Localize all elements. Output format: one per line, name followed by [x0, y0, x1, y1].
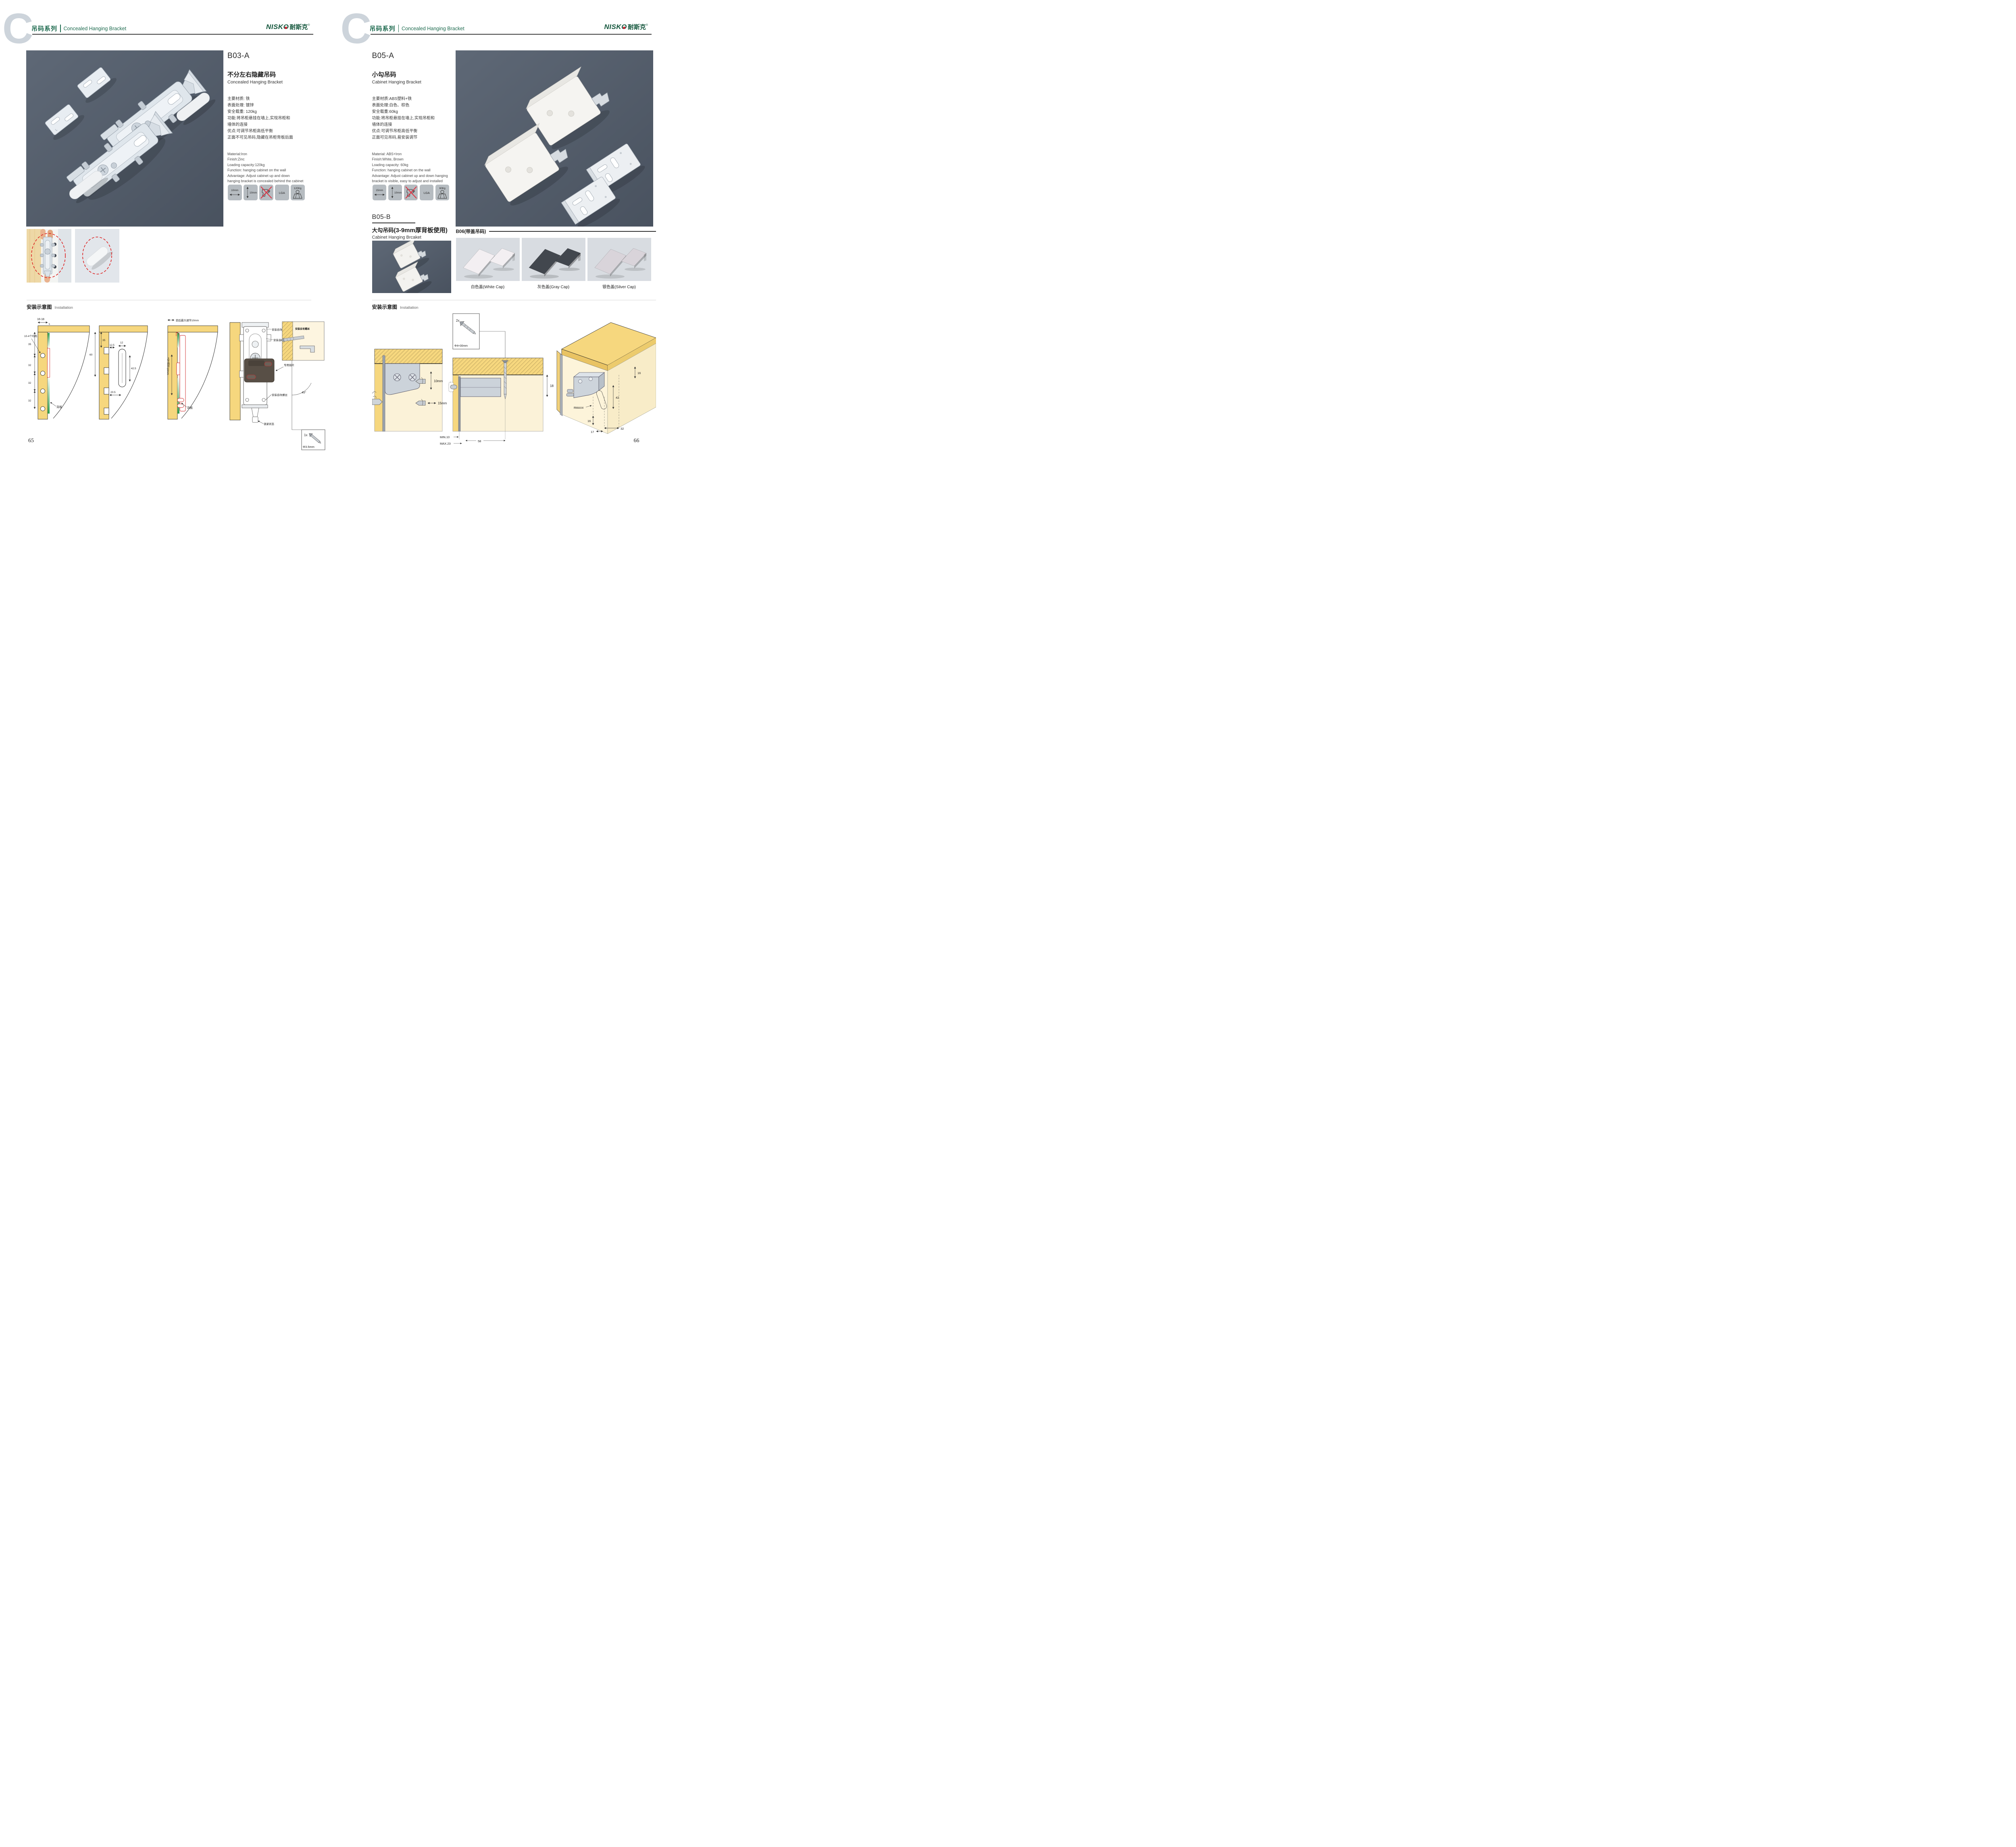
- dim-label: 15mm: [438, 401, 447, 405]
- detail-photo-install-hands: [27, 229, 71, 283]
- icon-label: 60Kg: [439, 187, 446, 190]
- cap-label-gray: 灰色盖(Gray Cap): [522, 283, 585, 289]
- detail-photo-hands-image: [27, 229, 71, 283]
- diagram-bracket-adjustment: 前后最大调节10mm 上下调节10mm 背板: [167, 318, 218, 419]
- spec-line: 主要材质:ABS塑料+铁: [372, 96, 469, 102]
- product-name-b05b: 大勾吊码(3-9mm厚背板使用) Cabinet Hanging Brcaket: [372, 226, 448, 240]
- detail-photo-cap-image: [75, 229, 119, 283]
- spec-line: 安全载重: 120kg: [227, 109, 324, 115]
- spec-line: Finish:White, Brown: [372, 157, 469, 162]
- feature-icons: 15mm 10mm LGA: [373, 185, 450, 200]
- dim-label: 32: [28, 382, 31, 385]
- spec-line: 功能:将吊柜悬挂在墙上,实现吊柜和: [227, 115, 324, 122]
- brand-logo: NISKO 耐斯克 ®: [266, 23, 310, 31]
- header-divider: [60, 25, 61, 32]
- screw-qty: 1x: [304, 433, 307, 437]
- brand-logo: NISKO 耐斯克 ®: [604, 23, 648, 31]
- product-name-cn: 不分左右隐藏吊码: [227, 70, 324, 79]
- dim-label: 20.5: [110, 391, 116, 394]
- icon-label: 10mm: [394, 191, 402, 194]
- dim-label: 32: [621, 427, 624, 431]
- no-drill-icon: [404, 185, 418, 200]
- registered-mark: ®: [308, 24, 310, 27]
- icon-label: LGA: [423, 191, 429, 195]
- spec-line: 表面处理:白色、棕色: [372, 102, 469, 109]
- spec-line: Material:Iron: [227, 152, 324, 157]
- header-divider: [398, 25, 399, 32]
- install-diagrams-b05: 10mm 15mm 2x: [372, 310, 656, 452]
- spec-line: Function: hanging cabinet on the wall: [227, 168, 324, 173]
- specs-en: Material: ABS+Iron Finish:White, Brown L…: [372, 152, 469, 184]
- no-drill-icon: [259, 185, 273, 200]
- product-name-en: Concealed Hanging Bracket: [227, 80, 324, 85]
- page-left: C 吊码系列 Concealed Hanging Bracket NISKO 耐…: [0, 0, 338, 462]
- b06-header: B06(带盖吊码): [456, 228, 656, 235]
- spec-line: 正面不可见吊码,隐藏在吊柜背板后面: [227, 135, 324, 141]
- dim-label: 60: [90, 354, 93, 356]
- page-header: 吊码系列 Concealed Hanging Bracket: [370, 24, 464, 33]
- catalog-spread: C 吊码系列 Concealed Hanging Bracket NISKO 耐…: [0, 0, 676, 462]
- diagram-side-drilling: 16-18 5 35 32 32 32: [24, 318, 90, 419]
- diagram-slot-dimensions: 60 35 12.5 12 42.5 20.5: [90, 326, 148, 419]
- series-title-en: Concealed Hanging Bracket: [64, 26, 127, 31]
- cap-swatch-silver: [587, 238, 651, 281]
- b06-cap-swatches: [456, 238, 651, 281]
- diagram-top-screw-section: 18 MIN.10 MAX.23 58: [440, 358, 554, 445]
- spec-line: 墙体的连接: [372, 122, 469, 128]
- section-letter: C: [341, 7, 372, 50]
- install-title: 安装示意图 Installation: [27, 303, 73, 310]
- series-title-en: Concealed Hanging Bracket: [402, 26, 464, 31]
- brand-logo-cn: 耐斯克: [289, 23, 308, 31]
- spec-line: Advantage: Adjust cabinet up and down ha…: [372, 173, 469, 179]
- inset-screw-label: 安装自攻螺丝: [295, 327, 310, 331]
- lga-cert-icon: LGA: [420, 185, 434, 200]
- dim-label: 10mm: [434, 379, 443, 383]
- spec-line: Loading capacity: 60kg: [372, 162, 469, 168]
- dim-label: 42: [616, 396, 619, 399]
- dim-label: 35: [28, 343, 31, 346]
- dim-label: 17: [591, 430, 594, 434]
- dim-label: 32: [28, 399, 31, 402]
- feature-icons: 10mm 10mm LGA: [228, 185, 305, 200]
- install-separator: [372, 300, 656, 300]
- width-adjust-icon: 10mm: [228, 185, 242, 200]
- spec-line: 主要材质: 铁: [227, 96, 324, 102]
- callout-locked-state: 锁紧状态: [264, 422, 275, 426]
- install-separator: [27, 300, 311, 300]
- spec-line: Material: ABS+Iron: [372, 152, 469, 157]
- dim-label: 58: [478, 439, 481, 443]
- brand-logo-cn: 耐斯克: [628, 23, 646, 31]
- dim-label: RMAX4: [574, 407, 583, 410]
- callout-screw: 安装自攻螺丝: [272, 393, 288, 397]
- product-photo-b05a: [456, 50, 653, 227]
- spec-line: 优点:可调节吊柜高低平衡: [372, 128, 469, 135]
- diagram-screwbox: 2x Φ4×30mm: [453, 314, 505, 359]
- logo-dot-icon: [285, 27, 287, 29]
- b06-title: B06(带盖吊码): [456, 228, 486, 235]
- dim-label: 12: [120, 341, 123, 344]
- detail-photo-cover-cap: [75, 229, 119, 283]
- icon-label: 10mm: [231, 189, 238, 192]
- page-number: 66: [634, 438, 639, 444]
- callout-holes: 10-4个均布: [24, 334, 37, 338]
- dim-label: MAX.23: [440, 442, 451, 445]
- dim-label: 5: [49, 323, 50, 326]
- product-photo-b05b-image: [372, 241, 451, 293]
- product-photo-b03a-image: L: [26, 50, 223, 227]
- install-title-cn: 安装示意图: [27, 303, 52, 310]
- icon-label: 120Kg: [294, 187, 302, 190]
- cap-label-white: 白色盖(White Cap): [456, 283, 520, 289]
- cap-label-silver: 银色盖(Silver Cap): [587, 283, 651, 289]
- dim-label: 16: [637, 371, 641, 375]
- load-capacity-icon: 120Kg: [291, 185, 305, 200]
- specs-en: Material:Iron Finish:Zinc Loading capaci…: [227, 152, 324, 184]
- diagram-perspective-view: 16 42 RMAX4 16 17 32: [557, 322, 656, 434]
- product-name-cn: 小勾吊码: [372, 70, 469, 79]
- height-adjust-icon: 10mm: [244, 185, 258, 200]
- b05b-underline: [372, 223, 415, 223]
- dim-label: 35: [102, 339, 106, 342]
- series-title-cn: 吊码系列: [31, 24, 57, 33]
- product-info-b03a: B03-A 不分左右隐藏吊码 Concealed Hanging Bracket…: [227, 52, 324, 184]
- spec-line: 表面处理: 镀锌: [227, 102, 324, 109]
- product-name-en: Cabinet Hanging Bracket: [372, 80, 469, 85]
- product-photo-b05b: [372, 241, 451, 293]
- product-info-b05a: B05-A 小勾吊码 Cabinet Hanging Bracket 主要材质:…: [372, 52, 469, 184]
- product-photo-b05a-image: [456, 50, 653, 227]
- section-letter: C: [2, 7, 33, 50]
- cap-swatch-white: [456, 238, 520, 281]
- logo-dot-icon: [623, 27, 625, 29]
- dim-label: MIN.10: [440, 435, 450, 439]
- page-right: C 吊码系列 Concealed Hanging Bracket NISKO 耐…: [338, 0, 677, 462]
- lga-cert-icon: LGA: [275, 185, 289, 200]
- b06-rule: [489, 231, 656, 232]
- specs-cn: 主要材质: 铁 表面处理: 镀锌 安全载重: 120kg 功能:将吊柜悬挂在墙上…: [227, 96, 324, 141]
- dim-label: 42.5: [131, 367, 136, 370]
- diagram-screw-inset: 安装自攻螺丝 45° 1x: [281, 322, 325, 450]
- screw-qty: 2x: [456, 319, 459, 322]
- page-number: 65: [28, 438, 34, 444]
- callout-backboard: 背板: [187, 406, 193, 410]
- install-title-cn: 安装示意图: [372, 303, 398, 310]
- cap-swatch-gray: [522, 238, 585, 281]
- height-adjust-icon: 10mm: [388, 185, 402, 200]
- dim-label: 12.5: [110, 344, 115, 347]
- header-rule: [32, 34, 313, 35]
- spec-line: 优点:可调节吊柜高低平衡: [227, 128, 324, 135]
- icon-label: 10mm: [250, 191, 257, 194]
- series-title-cn: 吊码系列: [370, 24, 396, 33]
- angle-label: 45°: [302, 391, 306, 394]
- dim-label: 16: [587, 419, 591, 423]
- callout-front-back-adjust: 前后最大调节10mm: [176, 318, 199, 322]
- product-code: B03-A: [227, 52, 324, 60]
- spec-line: 功能:将吊柜悬挂在墙上,实现吊柜和: [372, 115, 469, 122]
- install-title-en: Installation: [55, 306, 73, 310]
- icon-label: LGA: [279, 191, 285, 195]
- product-name-note: (3-9mm厚背板使用): [394, 227, 448, 234]
- diagram-bracket-section: 10mm 15mm: [372, 349, 447, 431]
- spec-line: Finish:Zinc: [227, 157, 324, 162]
- spec-line: bracket is visible, easy to adjust and i…: [372, 179, 469, 184]
- install-title: 安装示意图 Installation: [372, 303, 419, 310]
- product-code: B05-B: [372, 214, 469, 221]
- spec-line: 安全载重:60kg: [372, 109, 469, 115]
- product-photo-b03a: L: [26, 50, 223, 227]
- product-name-en: Cabinet Hanging Brcaket: [372, 235, 448, 240]
- callout-backboard: 背板: [56, 405, 62, 409]
- spec-line: Function: hanging cabinet on the wall: [372, 168, 469, 173]
- screw-size: Φ3.5mm: [303, 445, 314, 449]
- specs-cn: 主要材质:ABS塑料+铁 表面处理:白色、棕色 安全载重:60kg 功能:将吊柜…: [372, 96, 469, 141]
- spec-line: 正面可见吊码,易安装调节: [372, 135, 469, 141]
- spec-line: 墙体的连接: [227, 122, 324, 128]
- load-capacity-icon: 60Kg: [435, 185, 450, 200]
- spec-line: Advantage: Adjust cabinet up and down: [227, 173, 324, 179]
- install-title-en: Installation: [400, 306, 418, 310]
- page-header: 吊码系列 Concealed Hanging Bracket: [31, 24, 126, 33]
- header-rule: [371, 34, 652, 35]
- screw-size: Φ4×30mm: [454, 345, 468, 347]
- dim-label: 18: [550, 384, 554, 388]
- product-code: B05-A: [372, 52, 469, 60]
- install-diagrams-b03a: 16-18 5 35 32 32 32: [24, 310, 327, 452]
- registered-mark: ®: [646, 24, 648, 27]
- callout-hanging-plate: 专用挂片: [284, 363, 294, 367]
- dim-label: 16-18: [37, 318, 44, 321]
- dim-label: 32: [28, 364, 31, 367]
- icon-label: 15mm: [376, 189, 383, 192]
- product-info-b05b: B05-B: [372, 214, 469, 221]
- product-name-cn: 大勾吊码: [372, 227, 394, 233]
- spec-line: hanging bracket is concealed behind the …: [227, 179, 324, 184]
- spec-line: Loading capacity:120kg: [227, 162, 324, 168]
- width-adjust-icon: 15mm: [373, 185, 387, 200]
